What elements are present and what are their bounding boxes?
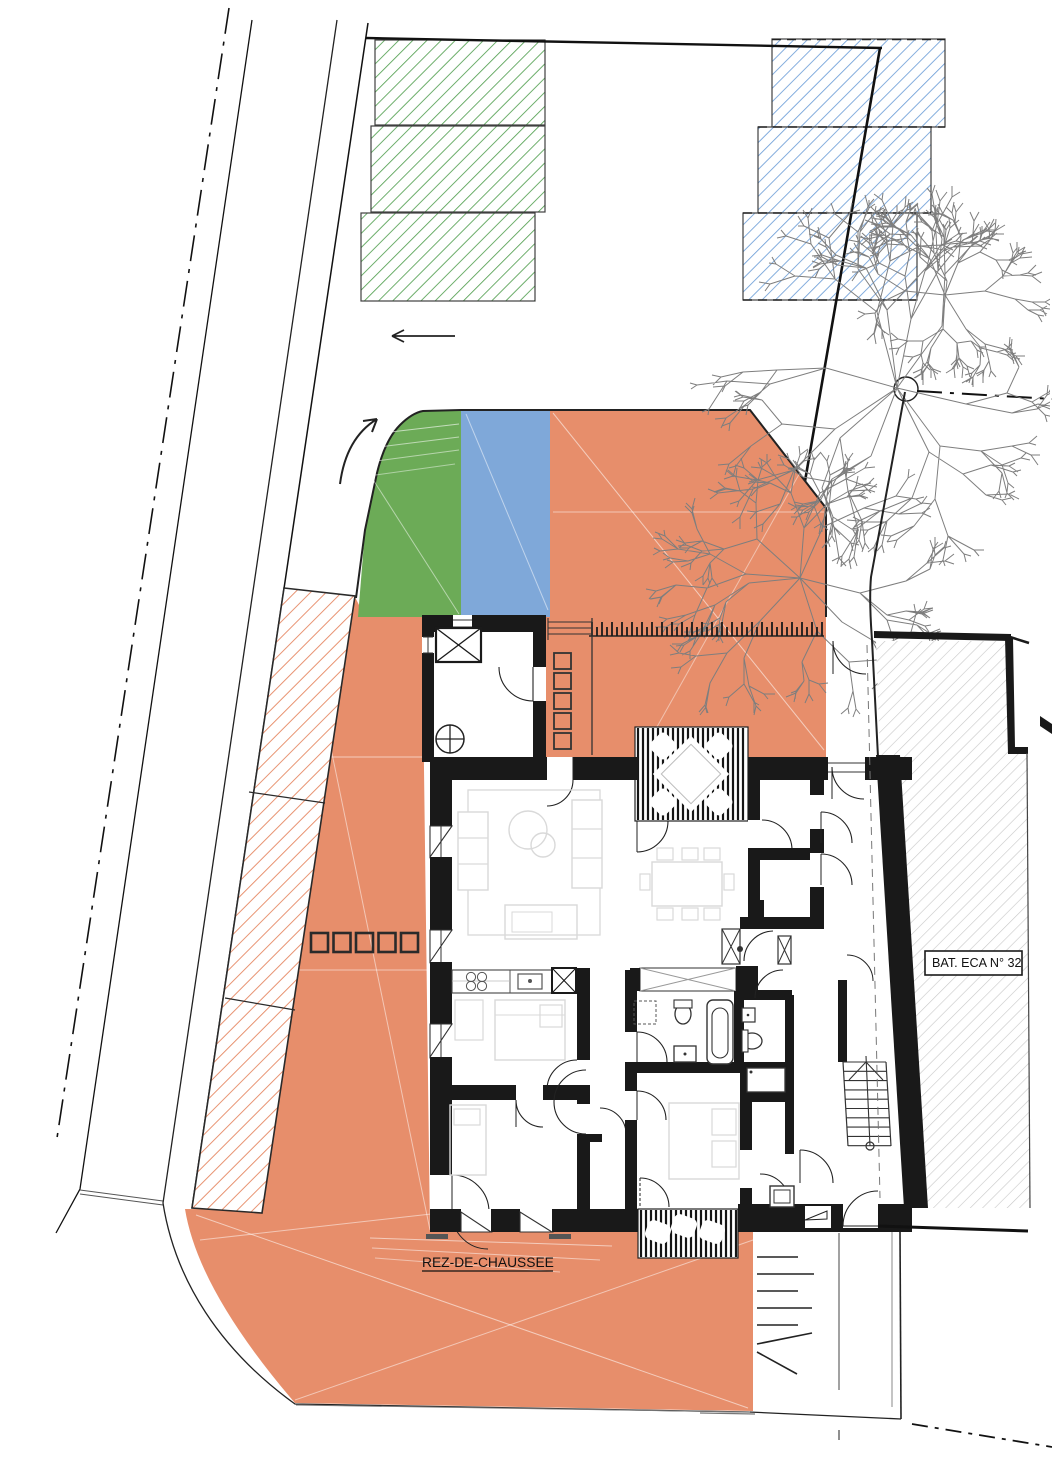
svg-text:REZ-DE-CHAUSSEE: REZ-DE-CHAUSSEE	[422, 1255, 554, 1270]
svg-text:BAT. ECA N° 32: BAT. ECA N° 32	[932, 956, 1022, 970]
